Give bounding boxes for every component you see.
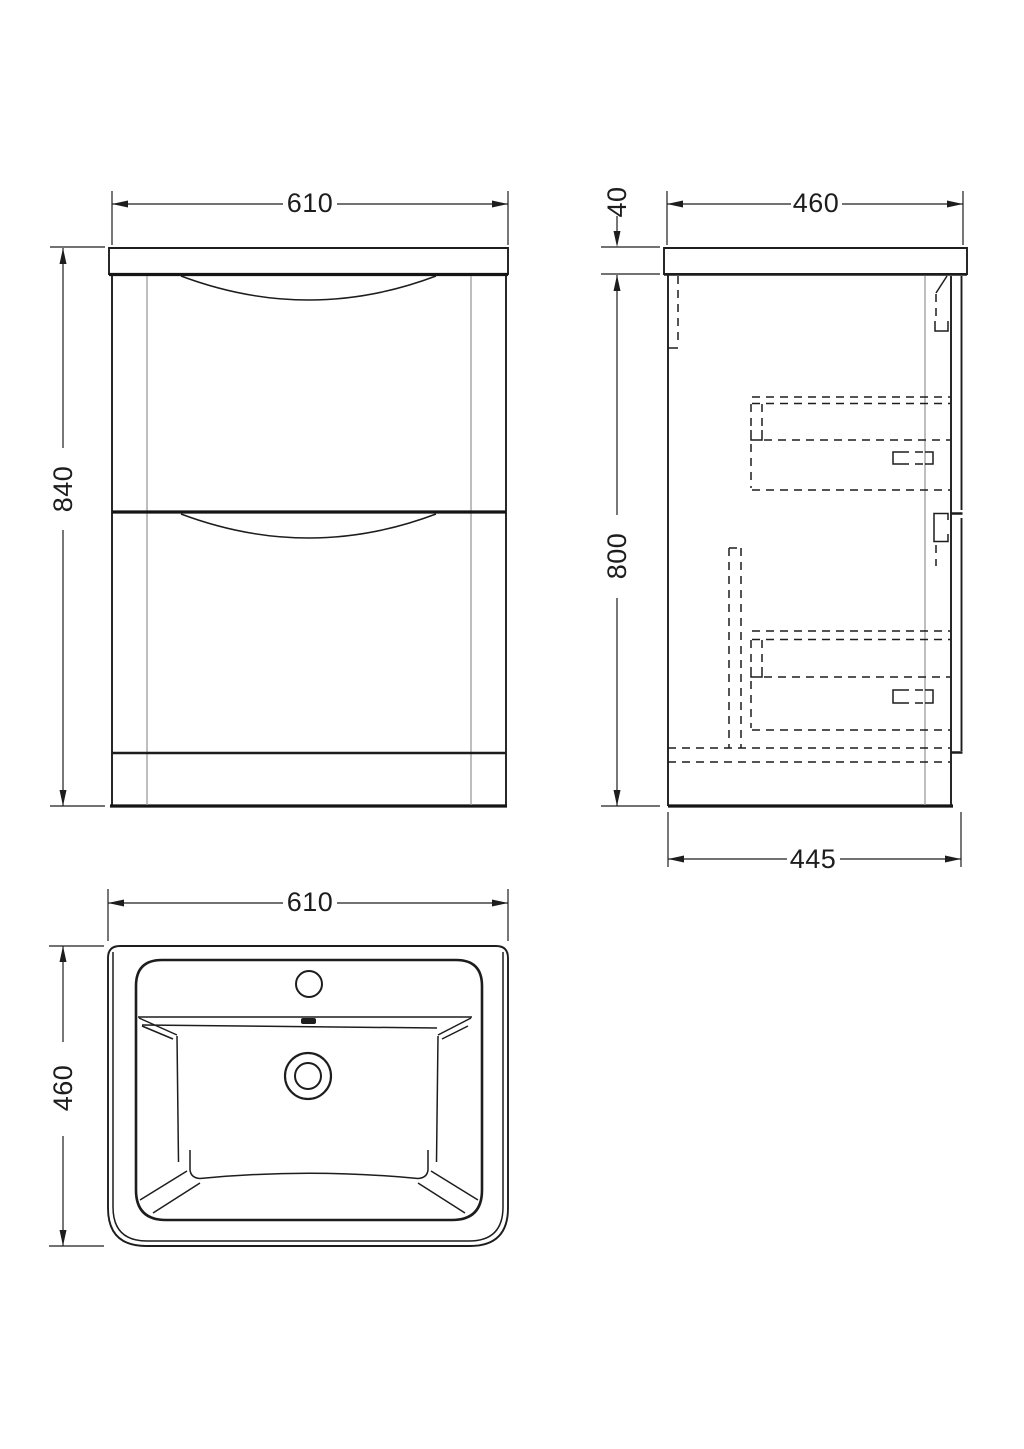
basin-width-arrow-right [492, 900, 508, 907]
side-base-arrow-left [668, 856, 684, 863]
side-depth-dimension-label: 460 [793, 188, 840, 218]
side-height-dimension-label: 800 [602, 533, 632, 580]
lower-drawer-rim-lines [752, 631, 950, 640]
drawing-sheet: 610 840 [0, 0, 1024, 1449]
waste-inner-circle [295, 1063, 321, 1089]
side-base-dimension-label: 445 [790, 844, 837, 874]
front-width-arrow-left [112, 201, 128, 208]
front-panel-joint-lines [147, 276, 471, 805]
bowl-bottom-left-corner-band [140, 1171, 200, 1213]
basin-outer-inner-contour [113, 952, 503, 1241]
side-thickness-dimension-label: 40 [602, 186, 632, 217]
upper-drawer-rim-lines [752, 397, 950, 404]
technical-drawing-canvas: 610 840 [0, 0, 1024, 1449]
bowl-bottom-right-corner-band [418, 1171, 478, 1213]
basin-width-arrow-left [108, 900, 124, 907]
lower-drawer-slide-left-bracket [893, 690, 901, 703]
basin-depth-arrow-top [60, 946, 67, 962]
side-lower-drawer-hidden-lines [729, 548, 950, 748]
upper-drawer-back-panel-hidden [751, 404, 762, 430]
bowl-flat-bottom-outline [190, 1150, 428, 1179]
front-top-drawer-handle-curve [181, 276, 436, 300]
side-middle-handle-profile [934, 514, 948, 567]
basin-inner-rim [136, 960, 482, 1220]
bowl-left-wall-line [177, 1036, 179, 1162]
lower-drawer-slide-right-bracket [925, 690, 933, 703]
front-height-dimension-label: 840 [48, 466, 78, 513]
lower-drawer-cutout-hidden-lines [729, 548, 741, 748]
side-height-arrow-bottom [614, 790, 621, 806]
basin-plan-view: 610 460 [48, 887, 508, 1246]
basin-width-dimension-label: 610 [287, 887, 334, 917]
front-width-dimension: 610 [112, 188, 508, 245]
front-width-dimension-label: 610 [287, 188, 334, 218]
front-height-arrow-bottom [60, 790, 67, 806]
side-section-view: 460 40 800 445 [601, 186, 967, 874]
bowl-top-left-chamfer [139, 1018, 177, 1039]
side-top-handle-chamfer [936, 276, 947, 293]
front-height-arrow-top [60, 248, 67, 264]
upper-drawer-slide-dashes [901, 452, 925, 464]
basin-depth-dimension: 460 [48, 946, 104, 1246]
side-worktop-thickness-dimension: 40 [601, 186, 660, 274]
side-upper-drawer-hidden-lines [751, 397, 950, 490]
front-height-dimension: 840 [48, 247, 105, 806]
side-base-depth-dimension: 445 [668, 812, 961, 874]
bowl-top-right-chamfer [438, 1018, 471, 1039]
basin-deck-front-line [142, 1025, 437, 1028]
basin-depth-dimension-label: 460 [48, 1065, 78, 1112]
basin-depth-arrow-bottom [60, 1230, 67, 1246]
waste-outer-circle [285, 1053, 331, 1099]
side-thickness-extension-lines [601, 247, 660, 274]
upper-drawer-back-panel-foot [751, 430, 762, 440]
front-width-arrow-right [492, 201, 508, 208]
side-worktop-outline [664, 248, 967, 274]
front-worktop-outline [109, 248, 508, 274]
side-back-rail-detail [668, 276, 678, 348]
side-plinth-hidden-lines [668, 748, 950, 762]
side-top-handle-profile [935, 276, 948, 331]
tap-hole [296, 971, 322, 997]
side-height-arrow-top [614, 275, 621, 291]
front-bottom-drawer-handle-curve [181, 514, 436, 538]
side-thickness-arrow [614, 231, 621, 247]
upper-drawer-slide-left-bracket [893, 452, 901, 464]
lower-drawer-slide-dashes [901, 690, 925, 703]
front-elevation-view: 610 840 [48, 188, 508, 806]
side-height-dimension: 800 [601, 275, 660, 806]
basin-outer-outline [108, 946, 508, 1246]
side-top-handle-lip [935, 321, 948, 331]
side-middle-handle-bracket [934, 514, 948, 542]
lower-drawer-back-panel-foot [751, 667, 762, 677]
overflow-slot [301, 1018, 316, 1024]
side-depth-dimension: 460 [667, 188, 963, 245]
front-height-extension-lines [50, 247, 105, 806]
upper-drawer-slide-right-bracket [925, 452, 933, 464]
side-base-arrow-right [945, 856, 961, 863]
basin-width-dimension: 610 [108, 887, 508, 941]
bowl-right-wall-line [437, 1036, 439, 1162]
lower-drawer-back-panel-hidden [751, 640, 762, 667]
side-depth-arrow-right [947, 201, 963, 208]
side-depth-arrow-left [667, 201, 683, 208]
